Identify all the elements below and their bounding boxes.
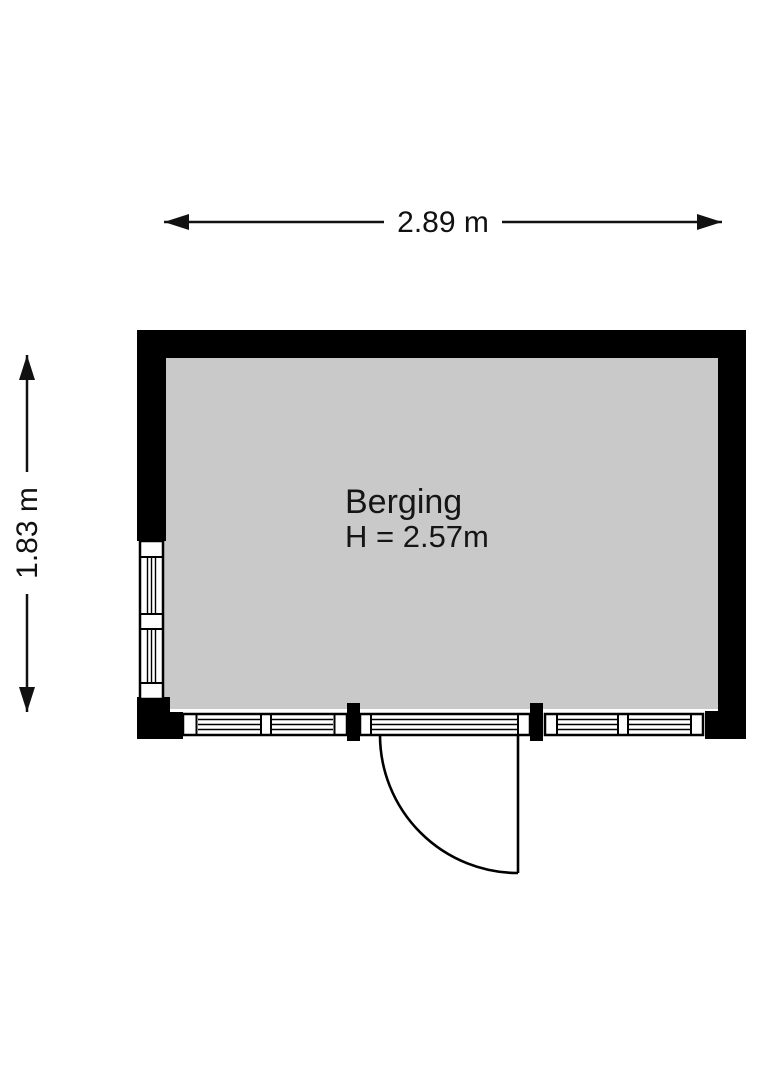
door [360, 714, 530, 873]
dimension-height-arrow: 1.83 m [11, 355, 44, 712]
wall-left-upper [137, 356, 166, 541]
window-bottom-right [545, 714, 703, 735]
arrowhead-up-icon [19, 355, 35, 380]
door-post-right [530, 703, 543, 741]
floorplan-canvas: 2.89 m 1.83 m [0, 0, 764, 1080]
window-left [140, 541, 163, 699]
arrowhead-left-icon [164, 214, 189, 230]
dimension-width-arrow: 2.89 m [164, 206, 722, 239]
corner-bottom-right [705, 711, 720, 739]
arrowhead-right-icon [697, 214, 722, 230]
room-ceiling-height-label: H = 2.57m [345, 519, 489, 554]
wall-top [137, 330, 746, 358]
arrowhead-down-icon [19, 687, 35, 712]
door-swing-arc [380, 735, 518, 873]
dimension-width-label: 2.89 m [397, 206, 489, 239]
door-post-left [347, 703, 360, 741]
room-name-label: Berging [345, 483, 462, 521]
dimension-height-label: 1.83 m [11, 487, 44, 579]
wall-right [718, 356, 746, 739]
window-bottom-left [183, 714, 347, 735]
